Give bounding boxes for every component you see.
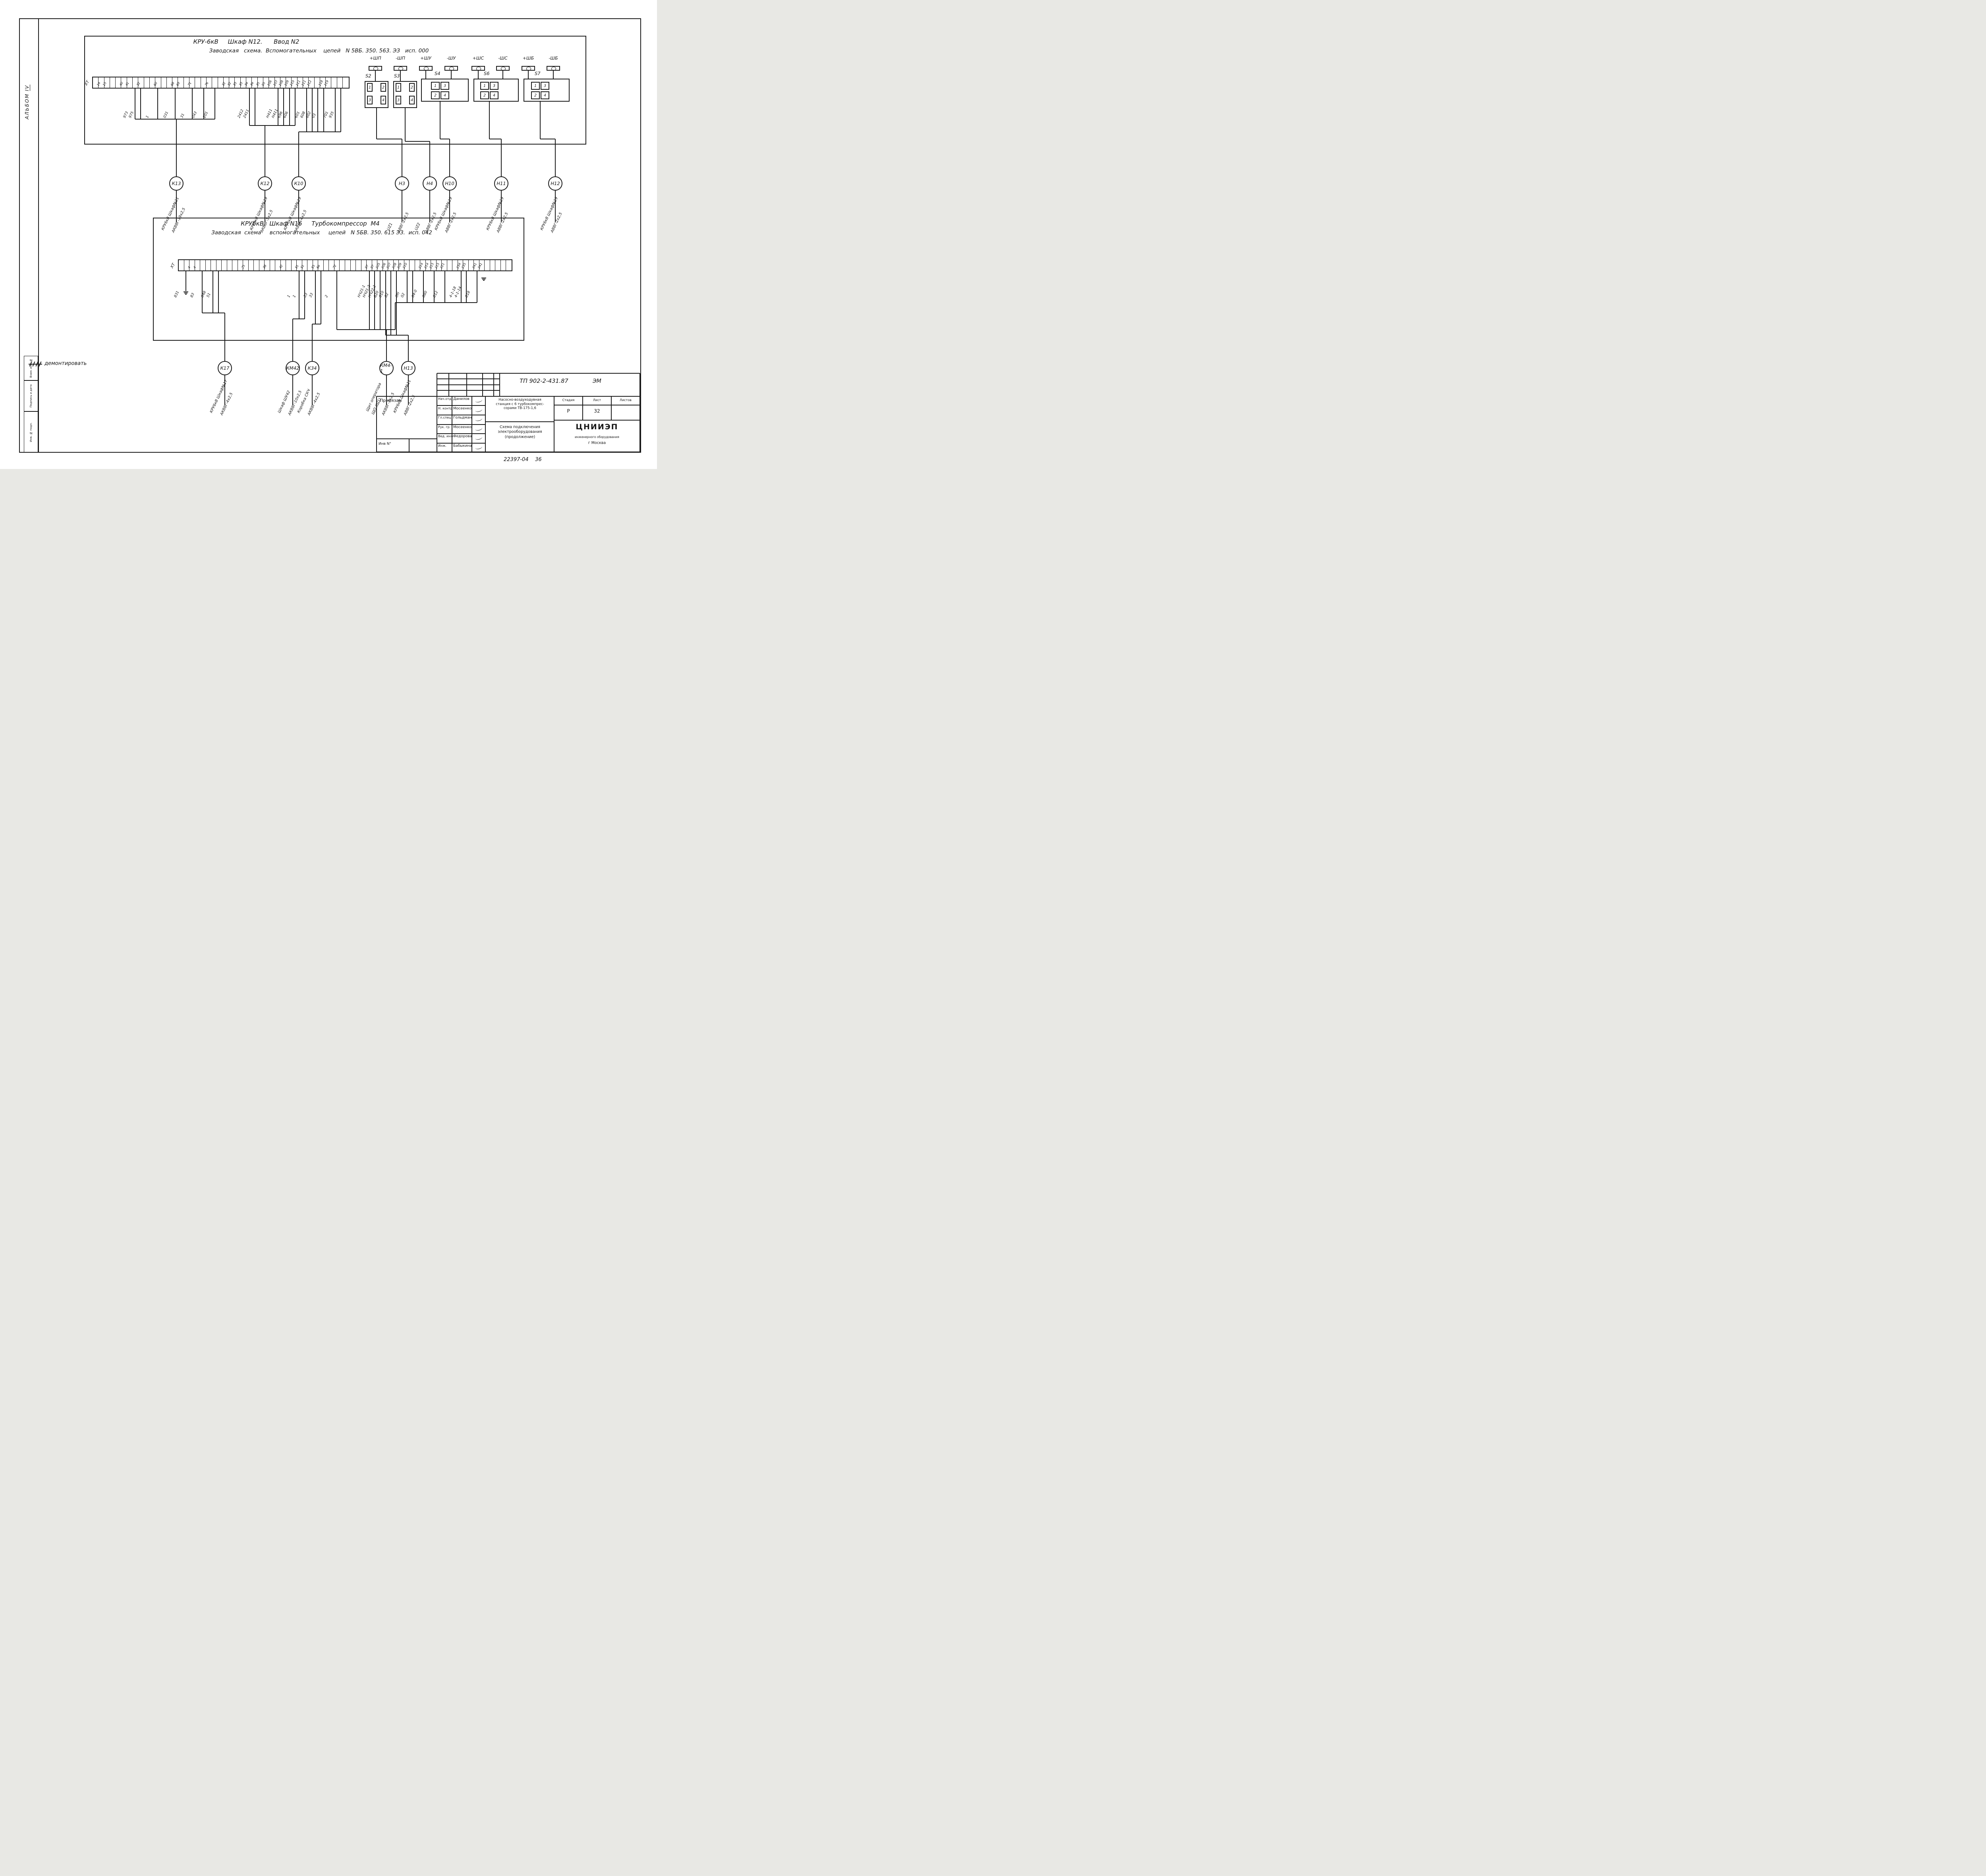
side-stamp-cell: Инв. № подл. — [24, 411, 38, 453]
title-block-line — [437, 378, 500, 379]
title-block-line — [437, 373, 640, 374]
terminal-cell: 32 — [138, 77, 144, 88]
terminal-cell: 41 — [127, 77, 133, 88]
drawing-sheet: АЛЬБОМ IV КРУ-6кВ Шкаф N12. Ввод N2 Заво… — [0, 0, 657, 469]
wire — [412, 271, 413, 303]
binding-margin-line — [38, 18, 39, 453]
wire — [312, 89, 313, 132]
ground-icon — [482, 279, 485, 279]
wire — [385, 271, 386, 335]
cable-wire — [292, 375, 293, 405]
staff-role: Инж. — [438, 444, 446, 448]
wire — [340, 89, 341, 132]
terminal-cell: 69 — [178, 77, 184, 88]
terminal-cell: 60 — [155, 77, 161, 88]
wire — [135, 89, 135, 119]
staff-role: Н. контр — [438, 407, 452, 410]
cable-wire — [429, 191, 430, 222]
cable-tag: К34 — [305, 361, 319, 375]
terminal-cell — [351, 260, 356, 270]
bus-label: -ШП — [396, 56, 405, 61]
wire — [400, 71, 401, 81]
title-block-line — [437, 373, 437, 452]
wire — [283, 89, 284, 125]
terminal-cell: 38 — [265, 260, 270, 270]
terminal-cell: 42 — [281, 260, 286, 270]
terminal-cell — [356, 260, 361, 270]
diagram2-title-line1: КРУ6кВ. Шкаф N16 Турбокомпрессор М4 — [211, 220, 410, 227]
terminal-cell — [340, 260, 345, 270]
terminal-cell — [345, 260, 351, 270]
wire — [451, 71, 452, 79]
wire — [192, 89, 193, 119]
wire — [390, 271, 391, 335]
diagram1-title-line1: КРУ-6кВ Шкаф N12. Ввод N2 — [147, 38, 346, 45]
terminal-cell — [343, 77, 348, 88]
wire — [528, 71, 529, 79]
side-stamp-label: Взам. инв. № — [24, 356, 38, 380]
ground-icon — [184, 293, 187, 293]
org-city: г Москва — [556, 441, 638, 445]
fuse-icon — [444, 66, 458, 71]
wire — [375, 71, 376, 81]
wire — [386, 335, 408, 336]
title-block-line — [377, 396, 437, 397]
terminal-cell — [216, 260, 222, 270]
switch-label: S3 — [394, 73, 400, 79]
wire — [440, 102, 440, 139]
switch-terminal: 4 — [381, 96, 386, 104]
wire — [395, 302, 477, 303]
wire — [306, 89, 307, 132]
switch-terminal: 3 — [396, 96, 401, 104]
cable-tag: К10 — [292, 176, 306, 191]
side-stamp-cell: Подпись и дата — [24, 380, 38, 411]
terminal-cell — [501, 260, 506, 270]
terminal-strip-xt1: 1415404132606869717632323333343435951061… — [92, 77, 350, 89]
cable-tag: Н13 — [401, 361, 415, 375]
wire — [315, 271, 316, 324]
bus-label: +ШУ — [420, 56, 431, 61]
terminal-cell: 71 — [189, 77, 195, 88]
title-block-line — [437, 384, 500, 385]
wire — [299, 131, 341, 132]
wire — [278, 89, 278, 125]
wire — [213, 271, 213, 313]
wire — [185, 271, 186, 291]
doc-number: ТП 902-2-431.87 — [501, 378, 587, 384]
switch-label: S6 — [484, 71, 490, 76]
terminal-cell — [195, 77, 201, 88]
wire — [135, 119, 215, 120]
wire — [304, 271, 305, 319]
wire — [377, 139, 402, 139]
bus-label: -ШУ — [447, 56, 456, 61]
cable-wire — [312, 375, 313, 405]
terminal-cell — [485, 260, 490, 270]
switch-terminal: 1 — [431, 82, 440, 90]
switch-terminal: 2 — [480, 91, 489, 99]
wire — [405, 141, 430, 142]
terminal-cell: 25 — [243, 260, 249, 270]
bus-label: +ШП — [369, 56, 381, 61]
wire — [489, 102, 490, 139]
wire — [176, 119, 177, 176]
cable-wire — [176, 191, 177, 222]
staff-name: Мосеенко — [453, 407, 471, 411]
cable-tag: КМ42 — [286, 361, 300, 375]
wire — [224, 313, 225, 361]
wire — [555, 139, 556, 176]
wire — [299, 271, 299, 319]
terminal-cell — [161, 77, 167, 88]
switch-terminal: 3 — [490, 82, 498, 90]
terminal-cell: 51 — [302, 260, 308, 270]
wire — [175, 89, 176, 119]
title-block-line — [437, 424, 485, 425]
wire — [214, 89, 215, 119]
inventory-label: Инв N° — [379, 442, 391, 446]
side-stamp-label: Подпись и дата — [24, 381, 38, 411]
terminal-cell — [324, 260, 329, 270]
terminal-cell: 112 — [309, 77, 314, 88]
terminal-cell: 119 — [326, 77, 331, 88]
terminal-cell: 15 — [104, 77, 110, 88]
title-block-line — [639, 373, 640, 452]
terminal-cell: 76 — [207, 77, 212, 88]
title-block-line — [437, 390, 500, 390]
title-block-line — [437, 405, 485, 405]
wire — [461, 271, 462, 303]
terminal-cell — [232, 260, 238, 270]
fuse-icon — [496, 66, 510, 71]
bus-label: +ШБ — [523, 56, 534, 61]
terminal-cell — [227, 260, 233, 270]
switch-terminal: 4 — [541, 91, 549, 99]
staff-role: Вед. инж — [438, 434, 454, 438]
wire — [408, 335, 409, 361]
cable-tag: КМ4-1 — [379, 361, 394, 375]
diagram2-frame — [153, 218, 524, 341]
terminal-cell — [211, 260, 216, 270]
title-block-line — [409, 439, 409, 452]
stage-value: Р — [556, 408, 581, 414]
title-block-line — [437, 396, 640, 397]
staff-name: Гольдман — [453, 416, 471, 420]
switch-terminal: 3 — [440, 82, 449, 90]
stage-sheet-header: Лист — [584, 398, 610, 402]
wire — [429, 141, 430, 176]
wire — [292, 319, 293, 361]
wire — [376, 108, 377, 139]
terminal-cell — [270, 260, 276, 270]
wire — [336, 271, 337, 330]
wire — [466, 271, 467, 303]
fuse-icon — [394, 66, 407, 71]
terminal-cell — [249, 260, 254, 270]
staff-name: Бабыкина — [453, 444, 472, 448]
terminal-cell — [331, 77, 337, 88]
fuse-icon — [369, 66, 382, 71]
switch-label: S2 — [365, 73, 371, 79]
wire — [323, 89, 324, 132]
wire — [380, 271, 381, 330]
wire — [444, 271, 445, 303]
wire — [369, 271, 370, 330]
fuse-icon — [547, 66, 560, 71]
drawing-title: Схема подключения электрооборудования (п… — [487, 425, 553, 440]
wire — [540, 139, 555, 139]
wire — [501, 139, 502, 176]
title-block-line — [611, 396, 611, 420]
wire — [395, 303, 396, 330]
terminal-cell — [184, 260, 190, 270]
org-name: ЦНИИЭП — [556, 423, 638, 431]
terminal-cell — [495, 260, 501, 270]
terminal-cell: 4 — [189, 260, 195, 270]
terminal-cell — [222, 260, 227, 270]
wire — [407, 271, 408, 303]
switch-terminal: 4 — [490, 91, 498, 99]
terminal-cell — [447, 260, 453, 270]
switch-terminal: 1 — [531, 82, 540, 90]
wire — [502, 71, 503, 79]
ground-icon — [184, 291, 188, 292]
footer-note: 22397-04 36 — [504, 457, 542, 463]
wire — [540, 102, 541, 139]
cable-tag: Н10 — [442, 176, 457, 191]
switch-terminal: 1 — [480, 82, 489, 90]
cable-wire — [555, 191, 556, 222]
terminal-cell — [110, 77, 116, 88]
wire — [202, 313, 225, 313]
staff-role: Гл.спец — [438, 416, 451, 419]
wire — [553, 71, 554, 79]
wire — [477, 271, 477, 303]
switch-terminal: 1 — [367, 83, 373, 92]
terminal-cell — [206, 260, 211, 270]
wire — [312, 324, 313, 361]
wire — [489, 139, 501, 139]
cable-tag: К17 — [218, 361, 232, 375]
fuse-icon — [522, 66, 535, 71]
switch-terminal: 4 — [409, 96, 415, 104]
terminal-cell: 141 — [479, 260, 485, 270]
terminal-cell: 135 — [463, 260, 469, 270]
title-block-line — [437, 443, 485, 443]
wire — [423, 271, 424, 303]
ground-icon — [481, 278, 486, 278]
title-block-line — [485, 421, 554, 422]
stage-sheet-header: Стадия — [556, 398, 581, 402]
terminal-cell: 66 — [318, 260, 324, 270]
wire — [335, 89, 336, 132]
ground-icon — [185, 294, 187, 294]
wire — [478, 71, 479, 79]
wire — [289, 89, 290, 125]
wire — [425, 71, 426, 79]
terminal-strip-xt2: 4425384251515566729797105106107108109110… — [178, 259, 512, 271]
title-block-line — [377, 452, 437, 452]
terminal-cell — [410, 260, 415, 270]
title-block-line — [377, 438, 437, 439]
bus-label: -ШБ — [549, 56, 558, 61]
wire — [374, 271, 375, 330]
title-block-line — [437, 415, 485, 415]
album-label: АЛЬБОМ IV — [24, 78, 30, 126]
switch-label: S7 — [535, 71, 541, 76]
title-block-line — [376, 396, 377, 452]
wire — [312, 324, 321, 324]
wire — [140, 89, 141, 119]
title-block-line — [582, 396, 583, 420]
legend-label: демонтировать — [44, 361, 87, 367]
switch-terminal: 3 — [541, 82, 549, 90]
wire — [321, 271, 321, 324]
fuse-icon — [419, 66, 433, 71]
terminal-cell — [144, 77, 150, 88]
terminal-cell: 110 — [404, 260, 410, 270]
wire — [386, 330, 387, 361]
wire — [434, 271, 435, 303]
cable-wire — [402, 191, 402, 222]
title-block-line — [437, 452, 640, 452]
wire — [396, 271, 397, 335]
cable-tag: Н12 — [548, 176, 562, 191]
wire — [249, 125, 295, 126]
wire — [298, 132, 299, 176]
switch-terminal: 2 — [409, 83, 415, 92]
stage-sheet-header: Листов — [613, 398, 638, 402]
terminal-cell — [337, 77, 343, 88]
terminal-cell — [200, 260, 206, 270]
wire — [402, 139, 402, 176]
switch-terminal: 2 — [381, 83, 386, 92]
terminal-cell — [490, 260, 496, 270]
staff-name: Федорова — [453, 434, 472, 438]
cable-tag: К13 — [169, 176, 184, 191]
cable-tag: К12 — [258, 176, 272, 191]
side-stamp-label: Инв. № подл. — [24, 412, 38, 452]
switch-terminal: 2 — [531, 91, 540, 99]
title-block-line — [437, 433, 485, 434]
sheet-value: 32 — [584, 408, 610, 414]
wire — [218, 271, 219, 313]
terminal-cell: 4 — [195, 260, 201, 270]
terminal-cell: 121 — [442, 260, 447, 270]
switch-terminal: 1 — [396, 83, 401, 92]
wire — [255, 89, 255, 125]
wire — [293, 318, 305, 319]
cable-tag: Н11 — [494, 176, 508, 191]
switch-terminal: 3 — [367, 96, 373, 104]
wire — [265, 125, 265, 176]
wire — [249, 89, 250, 125]
cable-wire — [449, 191, 450, 222]
staff-role: Рук. гр. — [438, 425, 450, 429]
wire — [295, 89, 296, 125]
wire — [202, 271, 203, 313]
terminal-cell — [506, 260, 512, 270]
terminal-cell — [179, 260, 184, 270]
fuse-icon — [471, 66, 485, 71]
cable-tag: Н3 — [395, 176, 409, 191]
staff-role: Нач.отд — [438, 397, 451, 401]
project-name: Насосно-воздуходувная станция с 6 турбок… — [487, 398, 553, 411]
staff-name: Данилов — [453, 397, 469, 401]
terminal-cell — [286, 260, 292, 270]
switch-terminal: 4 — [440, 91, 449, 99]
title-block-line — [554, 405, 640, 405]
cable-tag: Н4 — [423, 176, 437, 191]
bus-label: -ШС — [498, 56, 507, 61]
org-subtitle: инженерного оборудования — [556, 435, 638, 439]
doc-type: ЭМ — [593, 378, 601, 384]
title-block-line — [554, 420, 640, 420]
cable-wire — [501, 191, 502, 222]
side-stamp-cell: Взам. инв. № — [24, 356, 38, 380]
terminal-cell — [254, 260, 259, 270]
ground-icon — [483, 280, 485, 280]
terminal-cell — [212, 77, 218, 88]
cable-wire — [265, 191, 265, 222]
switch-terminal: 2 — [431, 91, 440, 99]
wire — [317, 89, 318, 132]
cable-wire — [386, 375, 387, 405]
switch-label: S4 — [435, 71, 440, 76]
staff-name: Мосеенко — [453, 425, 471, 429]
wire — [449, 139, 450, 176]
wire — [405, 108, 406, 141]
wire — [203, 89, 204, 119]
cable-wire — [298, 191, 299, 222]
wire — [440, 139, 450, 139]
diagram1-title-line2: Заводская схема. Вспомогательных цепей N… — [140, 48, 498, 54]
terminal-cell: 72 — [334, 260, 340, 270]
wire — [157, 89, 158, 119]
bus-label: +ШС — [473, 56, 484, 61]
